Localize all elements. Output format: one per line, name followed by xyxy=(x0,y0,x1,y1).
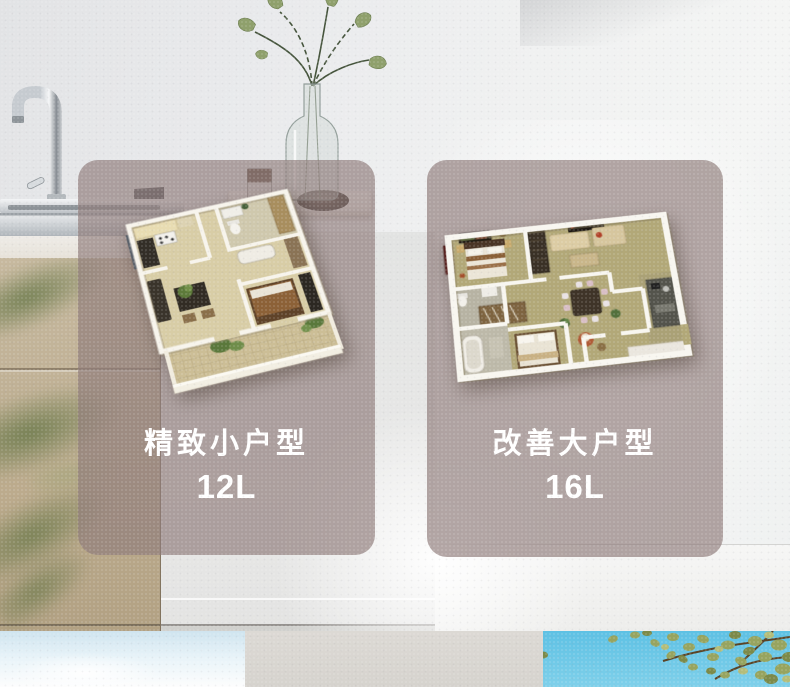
product-banner: 精致小户型 12L 改善大户型 16L xyxy=(0,0,790,687)
plant-leaves xyxy=(236,0,388,70)
faucet-icon xyxy=(12,92,66,203)
card-capacity: 12L xyxy=(78,468,375,506)
pale-sky-segment xyxy=(0,631,245,687)
card-capacity: 16L xyxy=(427,468,723,506)
tree-foliage xyxy=(543,631,790,687)
card-title: 改善大户型 xyxy=(427,428,723,461)
next-section-strip xyxy=(0,631,790,687)
wall-corner-shadow xyxy=(520,0,790,46)
large-apartment-floorplan-image xyxy=(455,206,675,382)
gray-segment xyxy=(245,631,543,687)
small-apartment-floorplan-image xyxy=(138,184,328,396)
card-label: 精致小户型 12L xyxy=(78,428,375,506)
card-title: 精致小户型 xyxy=(78,428,375,461)
cloud xyxy=(10,653,160,687)
cabinet-baseline xyxy=(0,624,160,626)
sky-tree-segment xyxy=(543,631,790,687)
card-label: 改善大户型 16L xyxy=(427,428,723,506)
